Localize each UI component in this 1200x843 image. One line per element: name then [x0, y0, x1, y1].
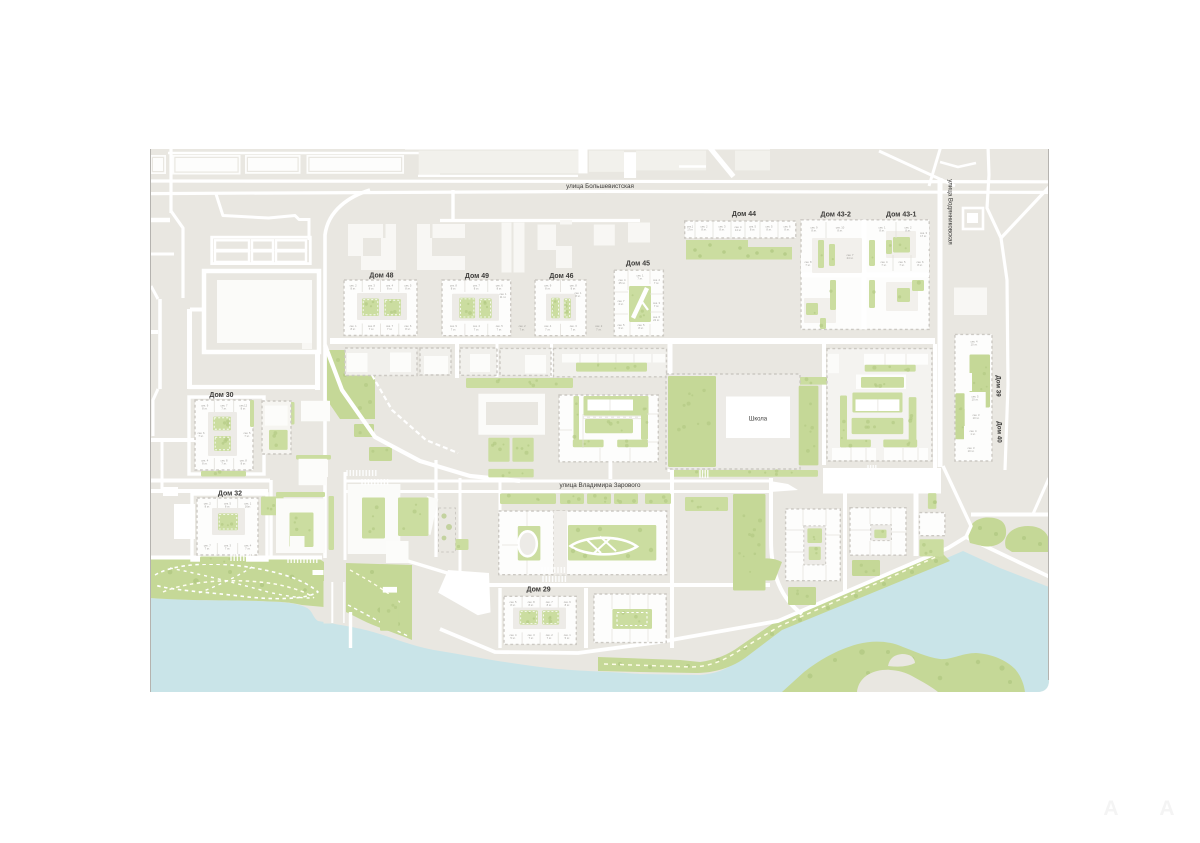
svg-text:7 эт.: 7 эт. [899, 263, 905, 267]
svg-text:7 эт.: 7 эт. [387, 327, 393, 331]
svg-text:8 эт.: 8 эт. [638, 326, 644, 330]
svg-text:Школа: Школа [749, 417, 768, 423]
svg-text:улица Большевистская: улица Большевистская [566, 183, 634, 190]
svg-text:14 эт: 14 эт [735, 228, 742, 232]
svg-text:8 эт.: 8 эт. [750, 228, 756, 232]
svg-text:8 эт.: 8 эт. [387, 287, 393, 291]
svg-text:1 эт.: 1 эт. [970, 432, 976, 436]
svg-text:7 эт.: 7 эт. [596, 327, 602, 331]
svg-text:10 эт.: 10 эт. [973, 416, 980, 420]
svg-text:8 эт.: 8 эт. [917, 263, 923, 267]
svg-text:7 эт.: 7 эт. [205, 547, 211, 551]
svg-text:Дом 46: Дом 46 [549, 273, 573, 280]
svg-text:7 эт.: 7 эт. [497, 327, 503, 331]
svg-text:7 эт.: 7 эт. [451, 327, 457, 331]
svg-text:8 эт.: 8 эт. [575, 294, 581, 298]
svg-text:8 эт.: 8 эт. [811, 229, 817, 233]
svg-text:8 эт.: 8 эт. [241, 407, 247, 411]
svg-text:7 эт.: 7 эт. [225, 547, 231, 551]
svg-text:8 эт.: 8 эт. [350, 327, 356, 331]
svg-text:7 эт.: 7 эт. [637, 277, 643, 281]
svg-text:Дом 43-1: Дом 43-1 [886, 212, 916, 219]
svg-text:8 эт.: 8 эт. [784, 228, 790, 232]
svg-text:8 эт.: 8 эт. [545, 287, 551, 291]
svg-text:16эт.: 16эт. [245, 505, 251, 509]
svg-text:8 эт.: 8 эт. [565, 603, 571, 607]
svg-text:7 эт.: 7 эт. [881, 263, 887, 267]
svg-text:Дом 49: Дом 49 [465, 273, 489, 280]
svg-text:7 эт.: 7 эт. [528, 636, 534, 640]
svg-text:7 эт.: 7 эт. [545, 327, 551, 331]
svg-text:7 эт.: 7 эт. [571, 327, 577, 331]
svg-text:8 эт.: 8 эт. [701, 228, 707, 232]
svg-text:Дом 39: Дом 39 [995, 375, 1002, 397]
svg-text:8 эт.: 8 эт. [497, 287, 503, 291]
svg-text:7 эт.: 7 эт. [654, 281, 660, 285]
svg-text:Дом 40: Дом 40 [996, 421, 1003, 443]
svg-text:7 эт.: 7 эт. [244, 434, 250, 438]
svg-text:10 эт.: 10 эт. [971, 343, 978, 347]
svg-text:8 эт.: 8 эт. [205, 505, 211, 509]
svg-text:24 эт.: 24 эт. [847, 256, 854, 260]
svg-text:A: A [1103, 797, 1118, 820]
svg-text:Дом 45: Дом 45 [626, 261, 650, 268]
svg-text:7 эт.: 7 эт. [805, 263, 811, 267]
svg-text:8 эт.: 8 эт. [405, 287, 411, 291]
svg-text:7 эт.: 7 эт. [474, 327, 480, 331]
svg-text:8 эт.: 8 эт. [451, 287, 457, 291]
svg-text:8 эт.: 8 эт. [879, 229, 885, 233]
svg-text:8 эт.: 8 эт. [528, 603, 534, 607]
svg-text:Дом 32: Дом 32 [218, 491, 242, 498]
svg-text:25 эт.: 25 эт. [619, 281, 626, 285]
svg-text:8 эт.: 8 эт. [571, 287, 577, 291]
svg-text:17 эт.: 17 эт. [920, 234, 927, 238]
svg-text:4 эт.: 4 эт. [618, 302, 624, 306]
svg-text:8 эт.: 8 эт. [837, 229, 843, 233]
svg-text:7 эт.: 7 эт. [519, 327, 525, 331]
svg-text:8 эт.: 8 эт. [241, 462, 247, 466]
svg-text:8 эт.: 8 эт. [369, 287, 375, 291]
svg-text:Дом 48: Дом 48 [369, 273, 393, 280]
svg-text:A: A [1159, 797, 1174, 820]
svg-text:5 эт.: 5 эт. [510, 636, 516, 640]
svg-text:улица Владимира Зарового: улица Владимира Зарового [560, 482, 641, 489]
svg-text:8 эт.: 8 эт. [474, 287, 480, 291]
svg-text:7 эт.: 7 эт. [221, 462, 227, 466]
svg-text:8 эт.: 8 эт. [766, 228, 772, 232]
svg-text:7 эт.: 7 эт. [198, 434, 204, 438]
svg-text:7 эт.: 7 эт. [369, 327, 375, 331]
svg-text:7 эт.: 7 эт. [547, 636, 553, 640]
svg-text:Дом 44: Дом 44 [732, 211, 756, 218]
svg-text:8 эт.: 8 эт. [202, 462, 208, 466]
svg-text:8 эт.: 8 эт. [547, 603, 553, 607]
svg-text:11 эт.: 11 эт. [500, 295, 507, 299]
svg-text:7 эт.: 7 эт. [221, 407, 227, 411]
svg-text:7 эт.: 7 эт. [245, 547, 251, 551]
svg-text:5 эт.: 5 эт. [565, 636, 571, 640]
svg-text:22 эт.: 22 эт. [653, 318, 660, 322]
svg-text:10 эт.: 10 эт. [972, 398, 979, 402]
svg-text:8 эт.: 8 эт. [405, 327, 411, 331]
svg-text:10 эт.: 10 эт. [968, 449, 975, 453]
svg-text:8 эт.: 8 эт. [719, 228, 725, 232]
svg-text:8 эт.: 8 эт. [350, 287, 356, 291]
svg-text:Дом 43-2: Дом 43-2 [821, 212, 851, 219]
svg-text:17эт: 17эт [687, 228, 693, 232]
svg-text:7 эт.: 7 эт. [654, 304, 660, 308]
svg-text:3 эт.: 3 эт. [618, 326, 624, 330]
svg-text:8 эт.: 8 эт. [510, 603, 516, 607]
svg-text:Дом 29: Дом 29 [527, 587, 551, 594]
svg-text:8 эт.: 8 эт. [202, 407, 208, 411]
svg-text:улица Водянниковская: улица Водянниковская [947, 179, 954, 245]
svg-text:Дом 30: Дом 30 [209, 392, 233, 399]
svg-text:8 эт.: 8 эт. [905, 229, 911, 233]
